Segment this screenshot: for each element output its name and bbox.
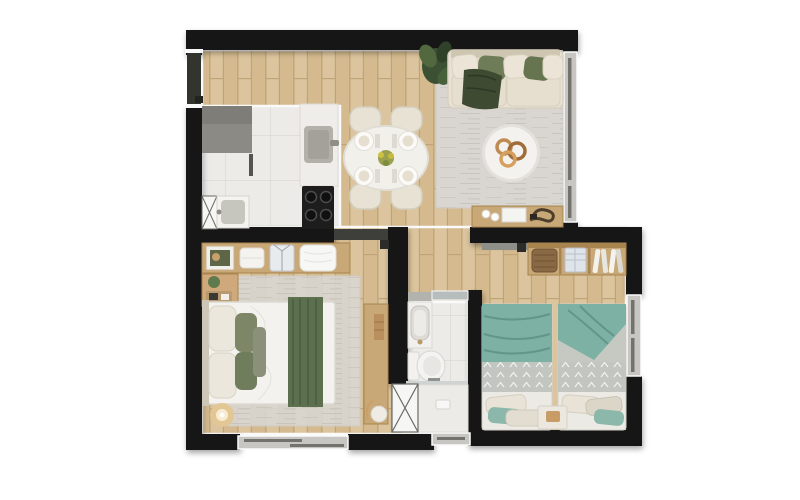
headboard [202, 300, 209, 406]
kitchen-island [300, 104, 339, 186]
bedroom-2-window [627, 295, 641, 376]
console-table [472, 206, 563, 227]
place-setting [355, 167, 381, 186]
toilet [408, 351, 445, 381]
open-wardrobe [528, 243, 626, 275]
glass-handle [428, 378, 440, 381]
place-setting [355, 132, 381, 151]
patterned-quilt [482, 362, 552, 392]
pillow-cream [209, 306, 236, 351]
living-room-window [564, 52, 577, 222]
wall-left [186, 105, 202, 450]
wall-bottom-c [468, 430, 642, 446]
bathroom-window [432, 433, 470, 445]
desk [364, 304, 388, 424]
pillow-sage [253, 327, 266, 377]
coffee-table [482, 124, 540, 182]
burner [321, 192, 332, 203]
cup [491, 213, 499, 221]
floor-plan-page [0, 0, 800, 500]
cabinet-handle [249, 154, 253, 176]
wall-mid-a [202, 227, 334, 243]
wall-bottom-b [348, 434, 434, 450]
burner [306, 192, 317, 203]
pillow-cream [543, 55, 563, 79]
books [374, 314, 384, 340]
vanity-faucet [418, 340, 423, 345]
plant-pot [208, 276, 220, 288]
entry-door [185, 49, 203, 108]
pillow-cream [209, 353, 236, 398]
wall-top [186, 30, 578, 50]
stove-cooktop [302, 186, 334, 229]
cup [482, 210, 490, 218]
wall-bathroom-bedroom2 [468, 290, 482, 432]
double-bed [202, 297, 335, 407]
burner [321, 210, 332, 221]
wall-bedroom2-right-upper [626, 243, 642, 295]
headboard-shelf [202, 243, 350, 273]
nightstand-box [546, 411, 560, 422]
wall-right-upper [563, 40, 578, 52]
laundry-faucet [217, 210, 222, 215]
laundry-area [202, 196, 249, 229]
kitchen-faucet [330, 140, 339, 146]
folded-duvet [300, 245, 336, 271]
bathroom-mirror-shelf [432, 291, 468, 300]
vase [371, 406, 387, 422]
book [502, 208, 526, 222]
place-setting [392, 132, 418, 151]
single-bed-right [558, 304, 626, 430]
bedroom2-nightstand [538, 406, 567, 429]
gray-counter-top [202, 106, 252, 124]
burner [306, 210, 317, 221]
place-setting [392, 167, 418, 186]
sofa [448, 50, 563, 109]
bathroom-door [408, 291, 468, 301]
wall-bedroom1-bathroom [388, 227, 408, 384]
vanity [408, 302, 432, 348]
bedroom-1-window [238, 436, 348, 449]
living-room [416, 39, 563, 227]
shower-drain [436, 400, 450, 409]
wall-mid-b [470, 227, 642, 243]
patterned-quilt [558, 362, 626, 392]
wall-bottom-a [186, 434, 240, 450]
flower-centerpiece [378, 150, 394, 166]
wall-bedroom2-right-lower [626, 376, 642, 446]
floor-plan-image [0, 0, 800, 500]
shaft-x [392, 384, 418, 432]
